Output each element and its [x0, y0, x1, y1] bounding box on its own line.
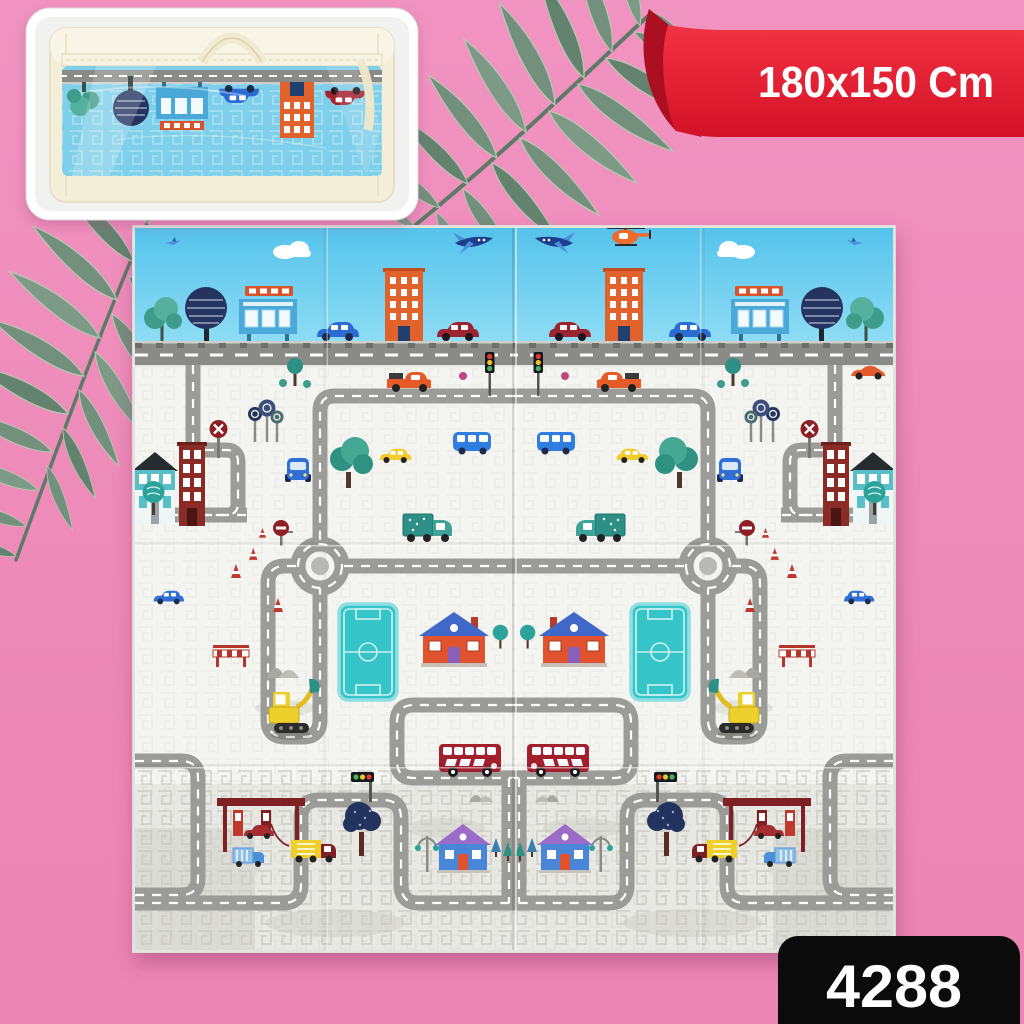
blue-car-front-icon — [285, 458, 311, 482]
orange-building — [280, 82, 314, 138]
balloon-dot — [459, 372, 467, 380]
soccer-field — [339, 604, 397, 700]
product-photo-inset — [26, 8, 418, 220]
folded-mat-print — [62, 66, 382, 176]
mat-center-seam — [512, 228, 515, 950]
product-image: 180x150 Cm 4288 — [0, 0, 1024, 1024]
roundabout-center — [311, 557, 329, 575]
billboard-building — [239, 286, 297, 341]
product-image-canvas: 180x150 Cm 4288 — [0, 0, 1024, 1024]
brick-building — [177, 442, 207, 526]
orange-building — [383, 268, 425, 341]
play-mat — [132, 226, 896, 952]
size-label: 180x150 Cm — [758, 58, 994, 107]
sku-number: 4288 — [826, 953, 962, 1020]
sku-badge: 4288 — [778, 936, 1020, 1024]
